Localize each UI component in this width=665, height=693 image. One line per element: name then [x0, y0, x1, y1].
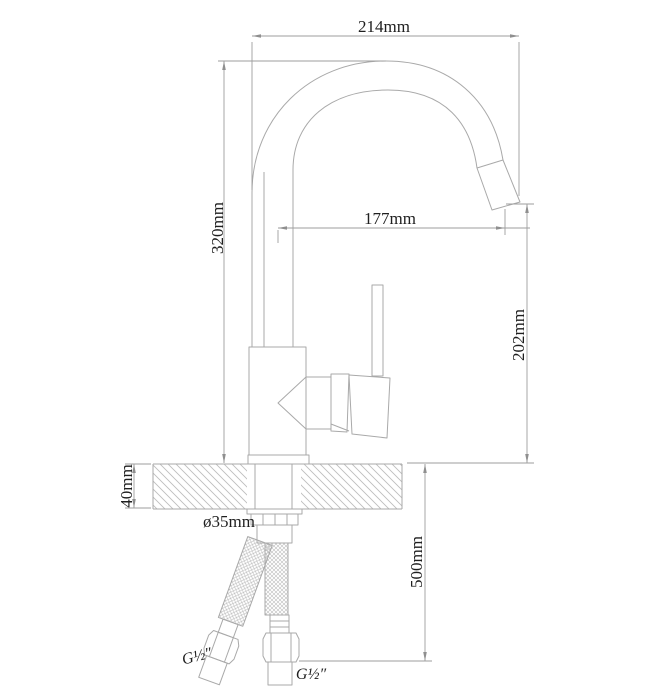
supply-hose-left — [194, 536, 275, 687]
gooseneck-spout — [252, 61, 520, 347]
label-total-height: 320mm — [208, 202, 227, 254]
label-outlet-height: 202mm — [509, 309, 528, 361]
shank-tail — [257, 525, 292, 543]
base-flange — [248, 455, 309, 464]
hex-nut-right — [263, 633, 299, 662]
mounting-shank — [255, 464, 292, 509]
countertop-section — [153, 464, 402, 509]
counter-hatch-left — [153, 464, 247, 509]
body-cone-notch — [278, 377, 306, 429]
label-counter-thickness: 40mm — [117, 464, 136, 507]
handle-stick — [372, 285, 383, 376]
body-column — [249, 347, 306, 455]
spout-aerator-tip — [477, 160, 520, 210]
hex-facets-right — [271, 633, 291, 662]
lever-handle — [349, 285, 390, 438]
handle-body — [349, 375, 390, 438]
horseshoe-washer — [247, 509, 302, 514]
technical-drawing-page: 214mm 320mm 177mm 202mm 40mm ø35mm 500mm… — [0, 0, 665, 693]
label-top-width: 214mm — [358, 17, 410, 36]
label-right-hose-thread: G½″ — [296, 666, 327, 683]
valve-boss — [306, 377, 331, 429]
faucet-dimension-drawing: 214mm 320mm 177mm 202mm 40mm ø35mm 500mm… — [0, 0, 665, 693]
fixing-hardware — [247, 509, 302, 543]
counter-hatch-right — [301, 464, 402, 509]
dimension-labels: 214mm 320mm 177mm 202mm 40mm ø35mm 500mm… — [117, 17, 528, 683]
hose-collar-ribs-right — [270, 621, 289, 627]
label-hose-length: 500mm — [407, 536, 426, 588]
label-spout-reach: 177mm — [364, 209, 416, 228]
thread-tail-right — [268, 662, 292, 685]
label-hole-diameter: ø35mm — [203, 512, 255, 531]
hose-collar-right — [270, 615, 289, 633]
faucet-drawing — [153, 61, 520, 686]
faucet-body — [248, 347, 349, 464]
supply-hose-right — [263, 543, 299, 685]
hose-braid-left — [218, 537, 272, 627]
cartridge-detail-line — [331, 424, 349, 431]
spout-outer-wall — [252, 61, 503, 347]
dimension-lines — [125, 36, 534, 661]
lock-nut-slots — [263, 514, 287, 525]
dimension-320mm — [218, 61, 386, 463]
label-left-hose-thread: G½″ — [180, 645, 214, 669]
cartridge-housing — [331, 374, 349, 432]
